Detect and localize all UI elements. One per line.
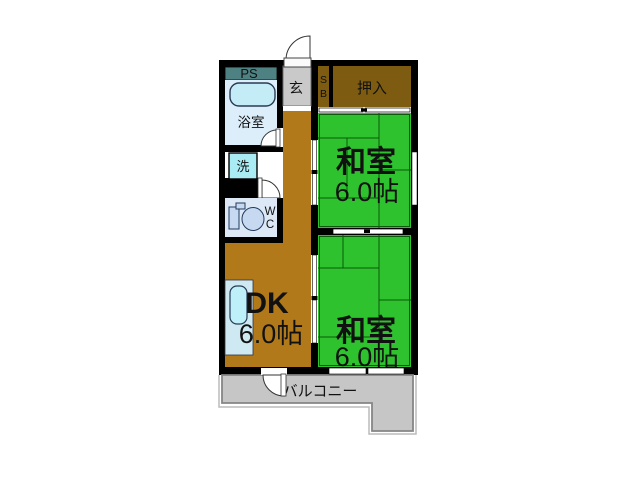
dk-size: 6.0帖 (239, 319, 304, 349)
fusuma-handle-mark (361, 109, 367, 112)
dk-washitsu2-door-panel (313, 255, 317, 298)
closet-fusuma-panel (319, 108, 363, 112)
entrance-label: 玄 (289, 80, 303, 96)
wc-label-top: W (265, 206, 276, 218)
wall-sb-closet (329, 66, 333, 107)
bathroom-door-leaf (276, 129, 280, 147)
closet-fusuma-panel (365, 108, 410, 112)
sliding-door-handle-mark (364, 230, 370, 234)
balcony-window-panel (368, 368, 404, 374)
dk-name: DK (245, 287, 289, 320)
entrance-step (283, 106, 311, 111)
wall-washer-wc-block (219, 178, 258, 198)
closet-label: 押入 (357, 80, 387, 97)
balcony-door-leaf (281, 374, 286, 396)
shoe-box-label-bottom: B (320, 88, 327, 100)
entrance-door-arc (286, 36, 310, 60)
sliding-door-handle-mark (312, 170, 318, 174)
bathroom-label: 浴室 (238, 114, 265, 130)
shoe-box-label-top: S (320, 74, 327, 86)
balcony-label: バルコニー (283, 383, 358, 400)
washitsu1-size: 6.0帖 (335, 177, 400, 207)
floorplan-drawing: PS 浴室 洗 W C DK 6.0帖 玄 S B 押入 (0, 0, 640, 480)
balcony-window-panel (329, 368, 366, 374)
wall-bath-hall (277, 60, 283, 243)
wc-label-bottom: C (266, 219, 274, 231)
wc-door-leaf (258, 178, 262, 198)
toilet-bowl-icon (242, 208, 264, 231)
window-right-wall (412, 152, 417, 205)
washitsu2-room: 和室 6.0帖 (318, 235, 411, 372)
sliding-door-handle-mark (312, 296, 318, 300)
bathtub-icon (230, 83, 275, 106)
washitsu1-room: 和室 6.0帖 (318, 113, 411, 228)
toilet-button-icon (236, 203, 245, 209)
washer-label: 洗 (236, 159, 249, 174)
hall-washitsu1-door-panel (313, 140, 317, 171)
dk-washitsu2-door-panel (313, 300, 317, 343)
pipe-space-label: PS (240, 66, 258, 81)
hall-washitsu1-door-panel (313, 173, 317, 205)
washitsu2-size: 6.0帖 (335, 342, 400, 372)
floorplan-page: PS 浴室 洗 W C DK 6.0帖 玄 S B 押入 (0, 0, 640, 480)
toilet-tank-icon (229, 207, 239, 229)
entrance-door-leaf (284, 58, 311, 67)
washitsu1-name: 和室 (336, 145, 396, 179)
wall-right (411, 60, 418, 375)
shoe-box (318, 66, 329, 107)
